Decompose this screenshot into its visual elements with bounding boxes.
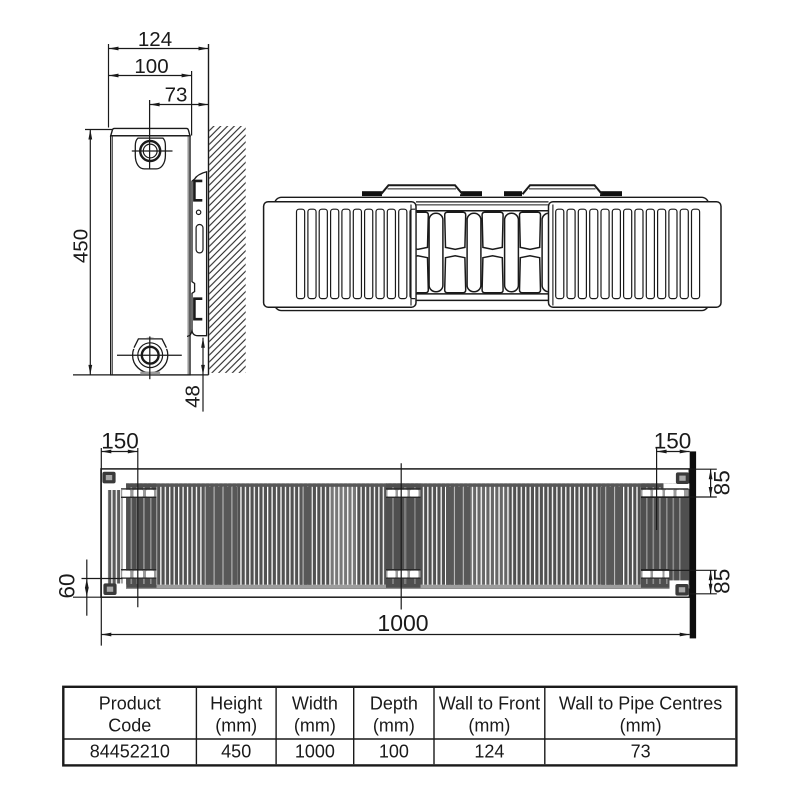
svg-text:(mm): (mm) (294, 716, 336, 736)
svg-text:(mm): (mm) (215, 716, 257, 736)
svg-text:124: 124 (138, 28, 172, 51)
svg-text:Product: Product (99, 694, 161, 714)
svg-text:1000: 1000 (295, 742, 335, 762)
svg-text:450: 450 (221, 742, 251, 762)
svg-text:100: 100 (379, 742, 409, 762)
svg-text:60: 60 (55, 573, 80, 598)
svg-text:124: 124 (474, 742, 504, 762)
svg-text:Width: Width (292, 694, 338, 714)
svg-text:450: 450 (70, 229, 93, 263)
svg-text:73: 73 (165, 84, 188, 107)
svg-text:Code: Code (108, 716, 151, 736)
svg-text:(mm): (mm) (373, 716, 415, 736)
svg-text:84452210: 84452210 (90, 742, 170, 762)
svg-text:48: 48 (182, 385, 205, 408)
svg-text:150: 150 (101, 429, 139, 454)
svg-text:85: 85 (710, 470, 735, 495)
svg-text:100: 100 (134, 55, 168, 78)
svg-text:(mm): (mm) (620, 716, 662, 736)
svg-text:(mm): (mm) (468, 716, 510, 736)
svg-text:Depth: Depth (370, 694, 418, 714)
svg-text:150: 150 (654, 429, 692, 454)
svg-text:1000: 1000 (377, 610, 428, 636)
svg-text:85: 85 (710, 569, 735, 594)
svg-text:Wall to Front: Wall to Front (439, 694, 540, 714)
svg-text:73: 73 (631, 742, 651, 762)
svg-text:Wall to Pipe Centres: Wall to Pipe Centres (559, 694, 722, 714)
svg-text:Height: Height (210, 694, 262, 714)
